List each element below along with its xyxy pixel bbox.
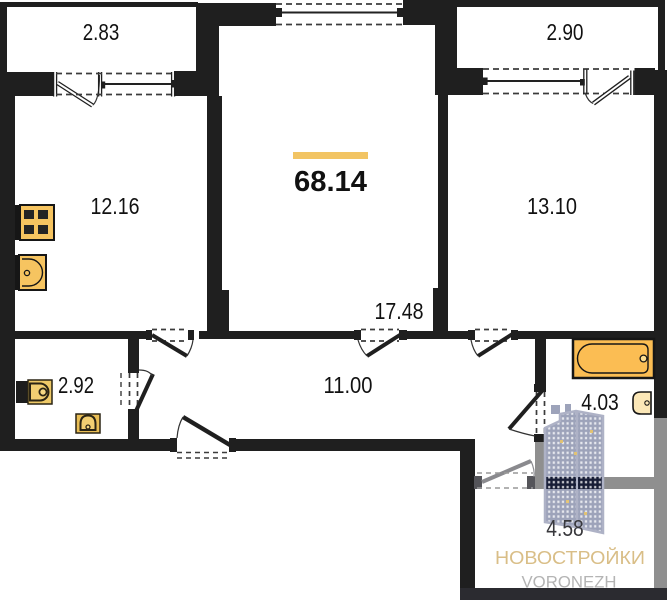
- svg-text:4.03: 4.03: [581, 389, 619, 415]
- svg-text:2.83: 2.83: [83, 19, 120, 45]
- svg-text:13.10: 13.10: [527, 193, 577, 219]
- svg-text:68.14: 68.14: [294, 166, 367, 198]
- svg-text:12.16: 12.16: [91, 193, 140, 219]
- svg-text:4.58: 4.58: [546, 515, 584, 541]
- svg-text:НОВОСТРОЙКИ: НОВОСТРОЙКИ: [495, 547, 645, 568]
- svg-text:VORONEZH: VORONEZH: [522, 573, 617, 592]
- svg-text:11.00: 11.00: [324, 372, 373, 398]
- svg-text:2.90: 2.90: [547, 19, 584, 45]
- svg-text:17.48: 17.48: [375, 298, 424, 324]
- svg-text:2.92: 2.92: [58, 372, 94, 398]
